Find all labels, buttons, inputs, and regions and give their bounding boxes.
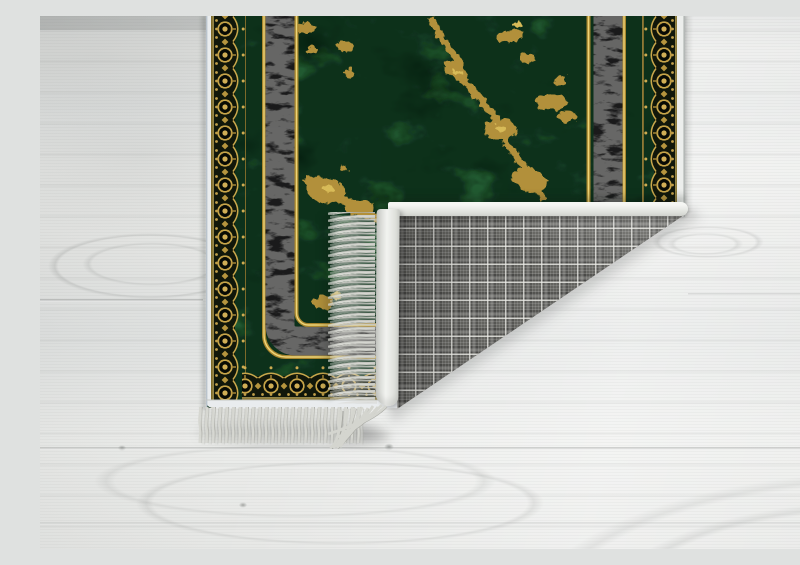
lace-border-right (642, 16, 678, 217)
rug-left-shadow (197, 16, 206, 410)
floor-plank-seam (40, 447, 800, 450)
floor-plank-seam (40, 299, 203, 302)
lace-border-left (211, 16, 246, 408)
fold-crease (388, 202, 688, 216)
flap-edge-binding (375, 209, 399, 406)
product-photo (40, 16, 800, 549)
rug-right-shadow (684, 16, 693, 213)
floor-plank-seam (688, 293, 800, 296)
floor-plank-seam (40, 522, 800, 525)
bottom-fringe (190, 404, 390, 449)
